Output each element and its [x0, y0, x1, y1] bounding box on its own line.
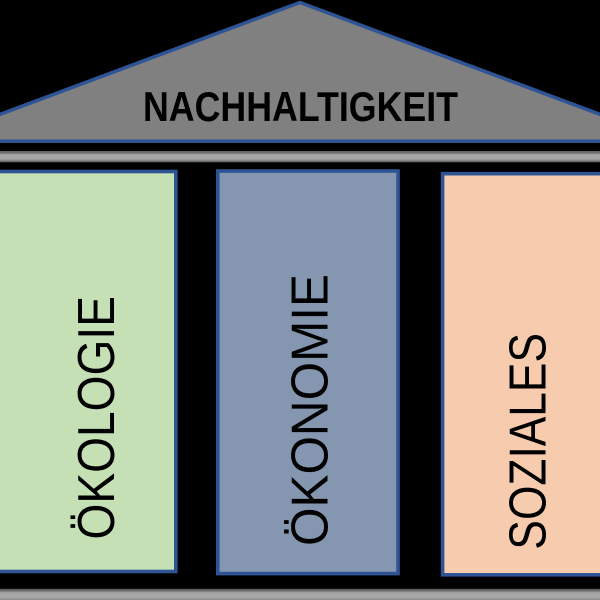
svg-text:ÖKOLOGIE: ÖKOLOGIE: [68, 296, 126, 540]
svg-text:SOZIALES: SOZIALES: [499, 333, 557, 550]
svg-text:NACHHALTIGKEIT: NACHHALTIGKEIT: [143, 83, 458, 130]
svg-text:ÖKONOMIE: ÖKONOMIE: [281, 274, 339, 546]
